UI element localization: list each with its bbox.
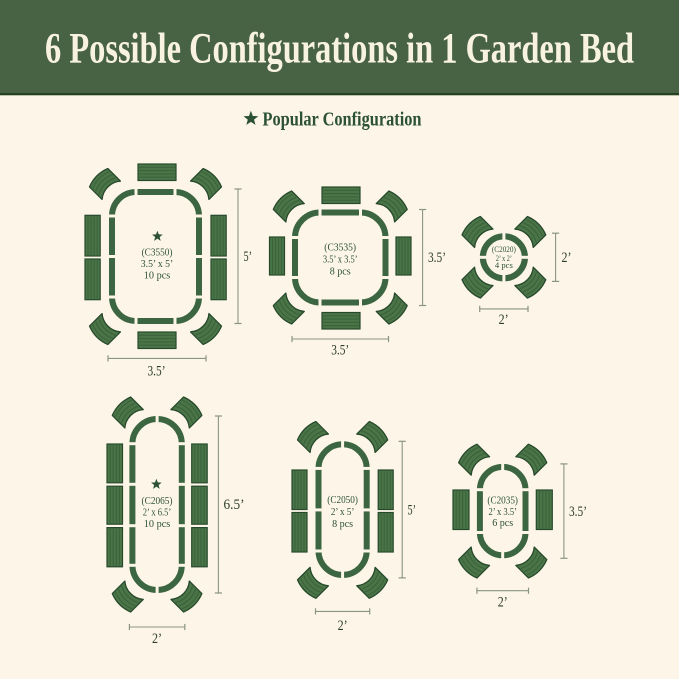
svg-text:3.5’: 3.5’ xyxy=(569,504,587,520)
svg-text:3.5’: 3.5’ xyxy=(428,250,446,266)
svg-text:6 pcs: 6 pcs xyxy=(492,518,513,529)
svg-text:5’: 5’ xyxy=(408,502,417,518)
svg-text:8 pcs: 8 pcs xyxy=(330,266,351,277)
svg-text:10 pcs: 10 pcs xyxy=(144,270,171,281)
svg-text:(C3535): (C3535) xyxy=(324,243,356,254)
svg-text:2’ x 3.5’: 2’ x 3.5’ xyxy=(488,507,517,518)
svg-text:2’: 2’ xyxy=(152,631,162,647)
svg-text:(C2020): (C2020) xyxy=(492,245,516,254)
svg-text:3.5’ x 3.5’: 3.5’ x 3.5’ xyxy=(323,254,358,265)
svg-text:2’: 2’ xyxy=(499,312,509,328)
svg-text:2’ x 6.5’: 2’ x 6.5’ xyxy=(143,507,172,518)
svg-text:6.5’: 6.5’ xyxy=(224,497,245,513)
svg-text:(C3550): (C3550) xyxy=(142,248,173,259)
svg-text:10 pcs: 10 pcs xyxy=(144,519,171,530)
svg-text:3.5’ x 5’: 3.5’ x 5’ xyxy=(141,259,173,270)
svg-text:2’: 2’ xyxy=(338,618,348,634)
svg-text:2’: 2’ xyxy=(562,250,572,266)
svg-text:5’: 5’ xyxy=(244,249,253,265)
svg-text:Popular Configuration: Popular Configuration xyxy=(263,109,422,131)
svg-text:2’ x 5’: 2’ x 5’ xyxy=(331,507,355,518)
svg-text:8 pcs: 8 pcs xyxy=(332,519,353,530)
svg-text:(C2065): (C2065) xyxy=(142,496,173,507)
svg-text:3.5’: 3.5’ xyxy=(148,364,166,380)
svg-text:3.5’: 3.5’ xyxy=(331,343,349,359)
svg-text:6 Possible Configurations in 1: 6 Possible Configurations in 1 Garden Be… xyxy=(45,26,634,73)
svg-text:4 pcs: 4 pcs xyxy=(495,261,513,270)
svg-text:(C2035): (C2035) xyxy=(487,496,518,507)
svg-text:(C2050): (C2050) xyxy=(327,495,358,506)
svg-text:2’: 2’ xyxy=(498,595,508,611)
